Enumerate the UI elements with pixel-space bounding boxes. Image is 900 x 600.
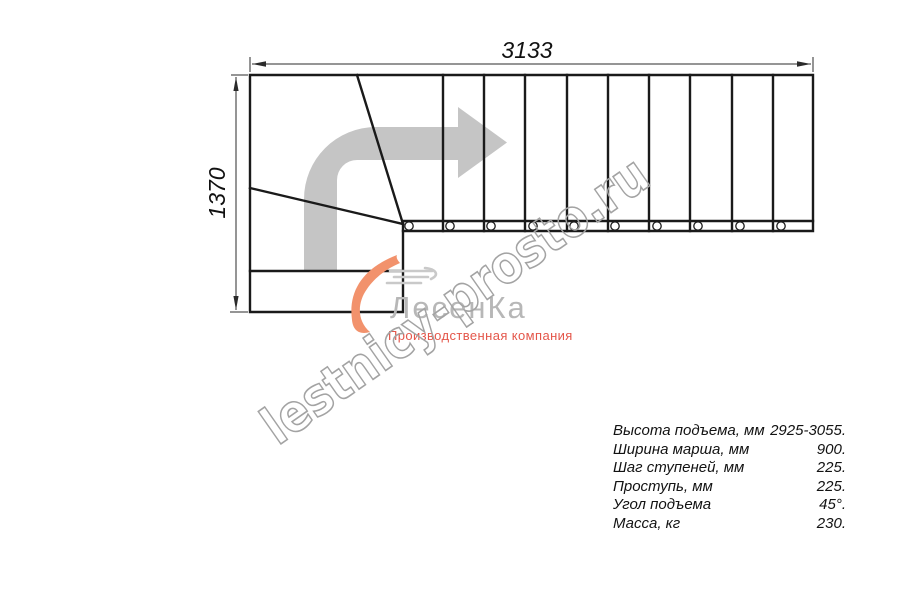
- dimension-width-label: 3133: [501, 37, 552, 63]
- spec-row-rise-angle: Угол подъема 45°.: [613, 496, 846, 515]
- dimension-height: [230, 75, 248, 312]
- spec-value: 2925-3055.: [770, 422, 846, 441]
- spec-label: Ширина марша, мм: [613, 441, 749, 460]
- spec-value: 225.: [817, 459, 846, 478]
- spec-row-flight-width: Ширина марша, мм 900.: [613, 441, 846, 460]
- spec-label: Шаг ступеней, мм: [613, 459, 744, 478]
- dimension-height-label: 1370: [204, 167, 230, 218]
- spec-value: 225.: [817, 478, 846, 497]
- spec-label: Масса, кг: [613, 515, 680, 534]
- spec-label: Проступь, мм: [613, 478, 713, 497]
- spec-row-step-pitch: Шаг ступеней, мм 225.: [613, 459, 846, 478]
- logo-speed-lines-icon: [387, 268, 436, 283]
- drawing-page: 3133 1370 ЛесенКа Производственная компа…: [0, 0, 900, 600]
- spec-row-mass: Масса, кг 230.: [613, 515, 846, 534]
- spec-row-rise-height: Высота подъема, мм 2925-3055.: [613, 422, 846, 441]
- spec-label: Высота подъема, мм: [613, 422, 765, 441]
- spec-row-tread-depth: Проступь, мм 225.: [613, 478, 846, 497]
- spec-label: Угол подъема: [613, 496, 711, 515]
- spec-value: 900.: [817, 441, 846, 460]
- direction-arrow: [304, 107, 507, 271]
- specs-table: Высота подъема, мм 2925-3055. Ширина мар…: [613, 422, 846, 534]
- spec-value: 230.: [817, 515, 846, 534]
- spec-value: 45°.: [819, 496, 846, 515]
